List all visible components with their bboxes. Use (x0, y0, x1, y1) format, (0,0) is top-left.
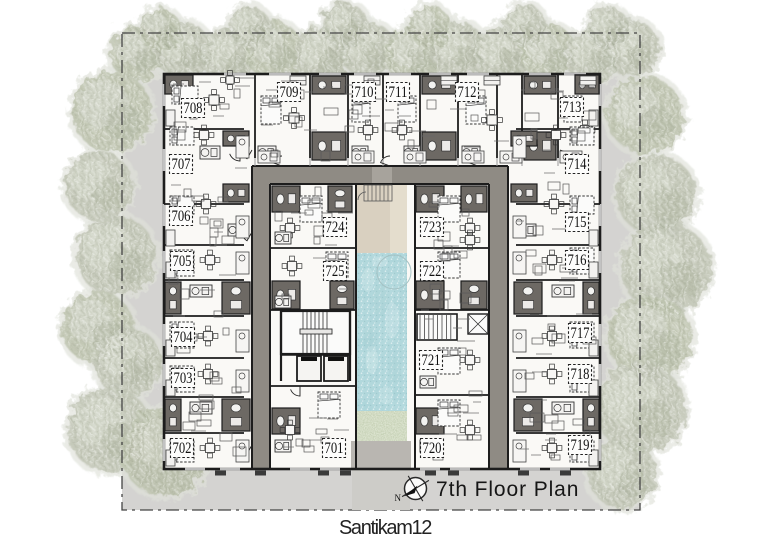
svg-text:717: 717 (571, 325, 590, 342)
svg-text:710: 710 (355, 84, 374, 101)
svg-text:705: 705 (173, 253, 192, 270)
svg-text:720: 720 (423, 440, 442, 457)
svg-text:712: 712 (458, 84, 477, 101)
svg-text:722: 722 (423, 263, 442, 280)
svg-text:714: 714 (568, 156, 587, 173)
svg-text:Santikam12: Santikam12 (339, 517, 432, 539)
svg-text:706: 706 (172, 208, 191, 225)
svg-text:713: 713 (563, 99, 582, 116)
svg-text:N: N (395, 493, 402, 503)
svg-text:718: 718 (571, 366, 590, 383)
svg-text:704: 704 (174, 329, 193, 346)
svg-text:701: 701 (325, 440, 344, 457)
svg-text:709: 709 (280, 84, 299, 101)
svg-text:716: 716 (568, 252, 587, 269)
svg-text:719: 719 (571, 437, 590, 454)
svg-text:708: 708 (184, 100, 203, 117)
svg-text:724: 724 (326, 219, 345, 236)
svg-text:702: 702 (173, 440, 192, 457)
svg-text:7th Floor Plan: 7th Floor Plan (436, 478, 579, 501)
svg-text:707: 707 (172, 156, 191, 173)
svg-text:711: 711 (389, 84, 408, 101)
svg-text:715: 715 (568, 214, 587, 231)
svg-text:723: 723 (423, 219, 442, 236)
svg-text:725: 725 (326, 263, 345, 280)
svg-text:703: 703 (174, 370, 193, 387)
svg-text:721: 721 (422, 352, 441, 369)
